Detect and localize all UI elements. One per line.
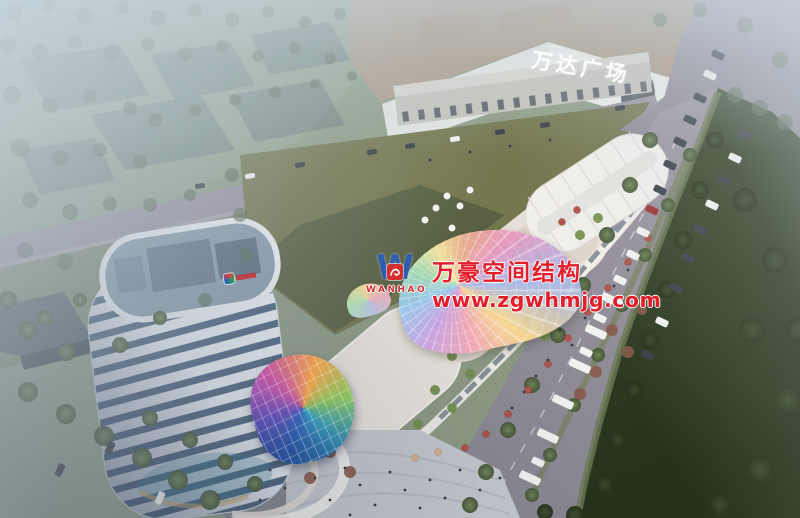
person: [535, 375, 538, 378]
tree: [57, 254, 73, 270]
tree: [225, 168, 239, 182]
tree: [150, 10, 166, 26]
person: [549, 139, 552, 142]
person: [344, 467, 347, 470]
umbrella: [456, 202, 463, 209]
tree: [148, 113, 162, 127]
tree: [653, 13, 667, 27]
tree: [142, 410, 158, 426]
tree: [447, 403, 457, 413]
person: [269, 469, 272, 472]
person: [359, 484, 362, 487]
person: [459, 469, 462, 472]
tree: [641, 331, 659, 349]
tree: [37, 310, 53, 326]
car: [54, 463, 66, 478]
tree: [691, 181, 709, 199]
umbrella: [544, 360, 551, 367]
tree: [762, 247, 788, 273]
person: [389, 471, 392, 474]
tree: [153, 311, 167, 325]
shop-window: [402, 111, 409, 122]
umbrella: [564, 334, 571, 341]
tree: [262, 6, 274, 18]
tree: [727, 87, 743, 103]
shop-window: [418, 109, 425, 120]
tower-logo-icon: [223, 273, 234, 284]
umbrella: [443, 192, 450, 199]
tree: [184, 189, 196, 201]
tree: [52, 150, 68, 166]
tree: [247, 476, 263, 492]
watermark-website: www.zgwhmjg.com: [432, 288, 661, 312]
person: [479, 489, 482, 492]
shop-window: [545, 93, 552, 104]
umbrella: [558, 218, 565, 225]
tree: [132, 448, 152, 468]
tree: [777, 114, 793, 130]
tree: [198, 293, 212, 307]
tree: [575, 230, 585, 240]
tree: [733, 188, 757, 212]
tree: [590, 366, 602, 378]
person: [314, 477, 317, 480]
tree: [42, 97, 58, 113]
tree: [622, 346, 634, 358]
tree: [430, 385, 440, 395]
umbrella: [421, 216, 428, 223]
person: [404, 489, 407, 492]
tree: [347, 71, 357, 81]
tree: [141, 37, 155, 51]
tree: [57, 343, 75, 361]
tree: [32, 44, 48, 60]
shop-window: [465, 103, 472, 114]
umbrella: [411, 454, 418, 461]
tree: [772, 52, 788, 68]
tree: [217, 454, 233, 470]
person: [511, 407, 514, 410]
tree: [525, 488, 539, 502]
tree: [462, 497, 478, 513]
architectural-render: 万达广场 W WANHAO 万豪空间结构 www.zgwhmjg.com: [0, 0, 800, 518]
watermark-text: 万豪空间结构 www.zgwhmjg.com: [432, 253, 661, 312]
tree: [77, 8, 93, 24]
person: [429, 159, 432, 162]
tree: [622, 177, 638, 193]
shop-window: [592, 87, 599, 98]
person: [349, 514, 352, 517]
tree: [625, 381, 643, 399]
tree: [299, 16, 311, 28]
tree: [683, 148, 697, 162]
tree: [229, 94, 241, 106]
tree: [22, 192, 38, 208]
shop-window: [513, 97, 520, 108]
tree: [216, 40, 228, 52]
person: [419, 507, 422, 510]
tree: [252, 50, 264, 62]
umbrella: [434, 448, 441, 455]
person: [559, 329, 562, 332]
shop-window: [561, 91, 568, 102]
tree: [324, 52, 336, 64]
tree: [115, 1, 129, 15]
tree: [543, 448, 557, 462]
tree: [413, 419, 423, 429]
tree: [606, 324, 618, 336]
tree: [709, 494, 731, 516]
umbrella: [448, 224, 455, 231]
wanhao-badge-icon: [387, 264, 403, 280]
tree: [188, 3, 202, 17]
tower-logo-text-bar: [236, 272, 257, 280]
tree: [737, 17, 753, 33]
tree: [73, 293, 87, 307]
tree: [465, 369, 475, 379]
tree: [706, 131, 724, 149]
shop-window: [497, 99, 504, 110]
tree: [591, 348, 605, 362]
tree: [609, 431, 627, 449]
person: [499, 477, 502, 480]
tree: [83, 89, 97, 103]
tree: [752, 100, 768, 116]
umbrella: [432, 204, 439, 211]
tree: [269, 86, 281, 98]
umbrella: [461, 444, 468, 451]
tree: [18, 382, 38, 402]
umbrella: [482, 430, 489, 437]
person: [584, 317, 587, 320]
shop-window: [434, 107, 441, 118]
person: [547, 359, 550, 362]
tree: [56, 404, 76, 424]
tree: [93, 143, 107, 157]
watermark-company: 万豪空间结构: [432, 253, 661, 287]
umbrella: [466, 186, 473, 193]
shop-window: [450, 105, 457, 116]
tree: [200, 490, 220, 510]
tree: [123, 101, 137, 115]
umbrella: [573, 206, 580, 213]
tree: [642, 132, 658, 148]
person: [523, 391, 526, 394]
tree: [103, 197, 117, 211]
tree: [11, 139, 29, 157]
tree: [478, 464, 494, 480]
umbrella: [524, 386, 531, 393]
person: [429, 479, 432, 482]
tree: [596, 476, 614, 494]
tree: [747, 457, 773, 483]
shop-window: [640, 81, 647, 92]
person: [284, 487, 287, 490]
umbrella: [504, 410, 511, 417]
tree: [7, 4, 23, 20]
tree: [3, 86, 21, 104]
person: [329, 499, 332, 502]
tree: [500, 422, 516, 438]
person: [509, 145, 512, 148]
person: [374, 504, 377, 507]
tree: [225, 13, 239, 27]
tree: [68, 35, 82, 49]
tree: [104, 44, 120, 60]
tree: [593, 213, 603, 223]
person: [259, 499, 262, 502]
tree: [574, 388, 586, 400]
shop-window: [529, 95, 536, 106]
tree: [239, 248, 253, 262]
tree: [739, 317, 765, 343]
tree: [182, 432, 198, 448]
tree: [233, 208, 247, 222]
shop-window: [577, 89, 584, 100]
watermark: W WANHAO 万豪空间结构 www.zgwhmjg.com: [366, 253, 661, 312]
tree: [143, 198, 157, 212]
tree: [310, 79, 320, 89]
tree: [189, 104, 201, 116]
tree: [674, 231, 692, 249]
tree: [289, 42, 301, 54]
tree: [661, 198, 675, 212]
tree: [168, 470, 188, 490]
person: [444, 497, 447, 500]
watermark-logo: W WANHAO: [366, 253, 424, 295]
person: [571, 344, 574, 347]
tree: [693, 3, 707, 17]
tree: [178, 47, 192, 61]
tree: [17, 242, 33, 258]
tree: [62, 204, 78, 220]
tree: [334, 8, 346, 20]
tree: [599, 227, 615, 243]
tree: [0, 37, 16, 53]
tree: [112, 337, 128, 353]
wanhao-logo-text: WANHAO: [366, 285, 424, 295]
tree: [133, 155, 147, 169]
shop-window: [481, 101, 488, 112]
person: [469, 151, 472, 154]
tree: [19, 321, 37, 339]
